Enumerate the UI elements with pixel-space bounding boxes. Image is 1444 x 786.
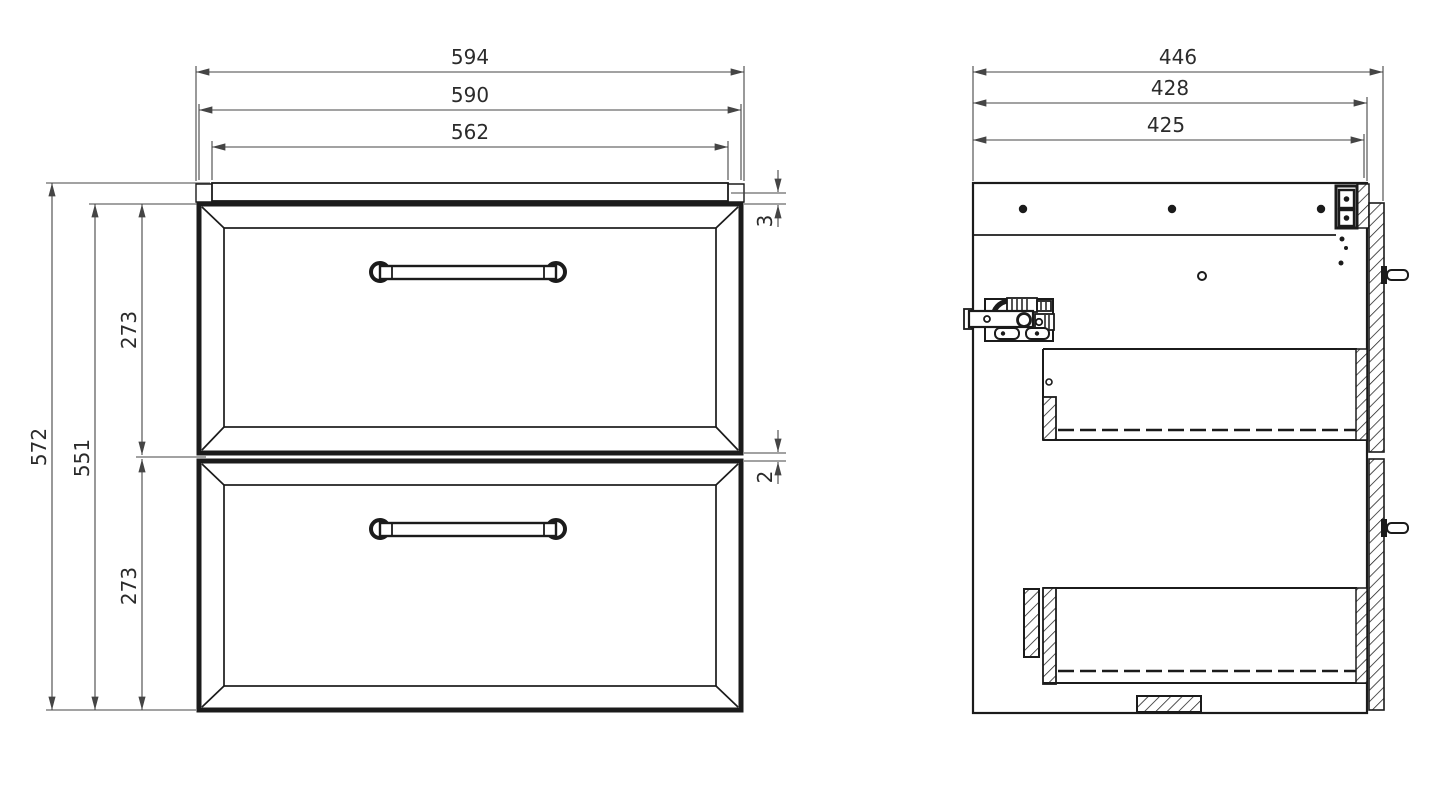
side-dimension-labels: 446 428 425 (1147, 45, 1197, 137)
drawer-back-panel-section (1043, 588, 1056, 684)
front-dimension-labels: 594 590 562 572 551 273 273 3 2 (27, 45, 777, 605)
side-upper-drawer-box (1043, 349, 1368, 440)
handle-bar (380, 523, 556, 536)
lower-drawer-outer-frame (199, 461, 741, 710)
pilot-hole (1198, 272, 1206, 280)
mounting-bracket-section (1024, 589, 1039, 657)
dim-side-body-depth: 428 (1151, 76, 1189, 100)
drawer-back-panel-section (1043, 397, 1056, 440)
front-top-panel (212, 183, 728, 201)
drawer-front-attachment-section (1356, 349, 1367, 440)
bottom-rail-section (1137, 696, 1201, 712)
dim-side-top-rail-depth: 425 (1147, 113, 1185, 137)
front-dimensions (46, 66, 786, 710)
dim-front-overall-height: 572 (27, 428, 51, 466)
dim-front-fronts-width: 590 (451, 83, 489, 107)
lower-drawer-handle (371, 520, 565, 538)
dim-front-drawer-gap: 2 (753, 471, 777, 484)
dim-front-overall-width: 594 (451, 45, 489, 69)
lower-drawer-inner-panel (224, 485, 716, 686)
upper-drawer-handle (371, 263, 565, 281)
wall-hanging-bracket (1336, 184, 1369, 228)
side-view (964, 183, 1408, 713)
upper-handle-section (1381, 266, 1408, 284)
front-body-top-left-edge (196, 184, 212, 202)
dim-front-lower-drawer-height: 273 (117, 567, 141, 605)
screw-dot (1339, 261, 1344, 266)
side-lower-drawer-box (1024, 588, 1368, 684)
screw-dot (1019, 205, 1027, 213)
drawing-canvas: 594 590 562 572 551 273 273 3 2 (0, 0, 1444, 786)
screw-dot (1168, 205, 1176, 213)
front-view (196, 183, 744, 710)
dim-front-top-reveal: 3 (753, 215, 777, 228)
lower-drawer-front-section (1369, 459, 1384, 710)
front-upper-drawer (199, 204, 741, 453)
lower-handle-section (1381, 519, 1408, 537)
screw-dot (1317, 205, 1325, 213)
front-lower-drawer (199, 461, 741, 710)
upper-drawer-outer-frame (199, 204, 741, 453)
dim-front-top-panel-width: 562 (451, 120, 489, 144)
upper-drawer-inner-panel (224, 228, 716, 427)
dim-front-upper-drawer-height: 273 (117, 311, 141, 349)
cabinet-technical-drawing: 594 590 562 572 551 273 273 3 2 (0, 0, 1444, 786)
drawer-slide-mechanism (964, 298, 1054, 341)
screw-dot (1344, 246, 1348, 250)
dim-side-overall-depth: 446 (1159, 45, 1197, 69)
screw-dot (1340, 237, 1345, 242)
dim-front-fronts-height: 551 (70, 439, 94, 477)
upper-drawer-front-section (1369, 203, 1384, 452)
handle-bar (380, 266, 556, 279)
drawer-front-attachment-section (1356, 588, 1367, 683)
